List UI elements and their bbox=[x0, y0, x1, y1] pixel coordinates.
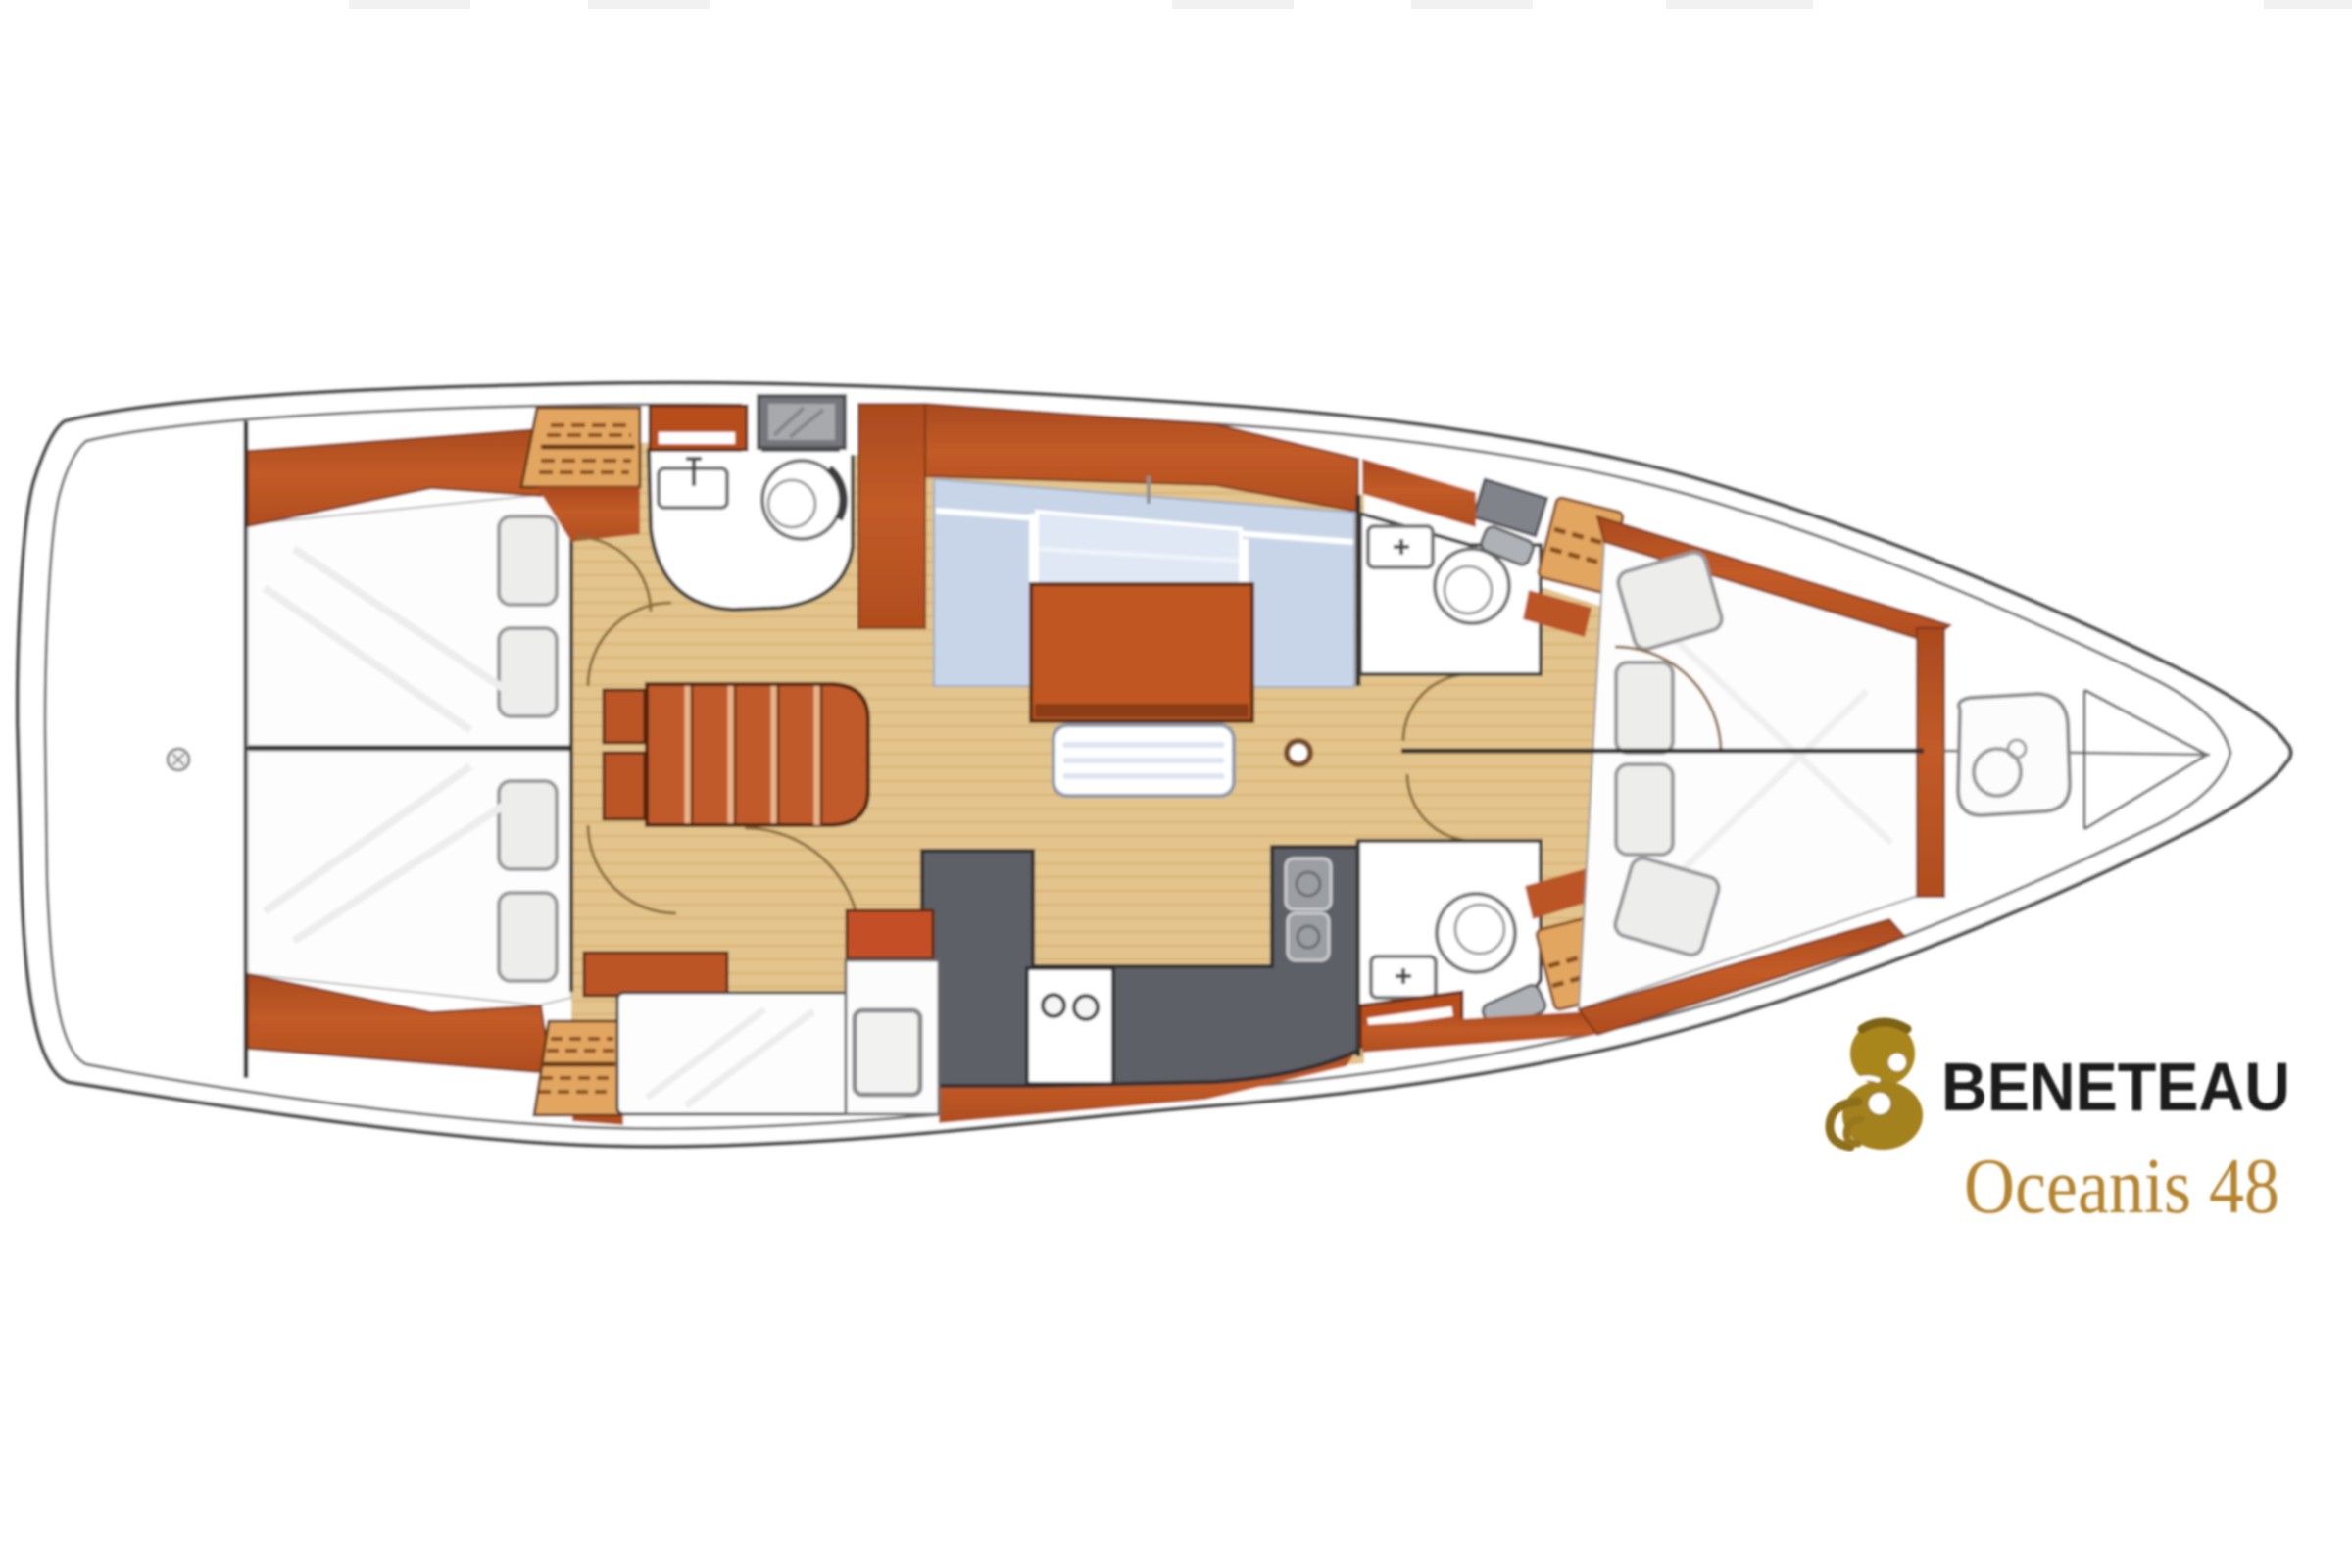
svg-text:Oceanis 48: Oceanis 48 bbox=[1964, 1144, 2279, 1230]
svg-text:BENETEAU: BENETEAU bbox=[1941, 1049, 2290, 1125]
